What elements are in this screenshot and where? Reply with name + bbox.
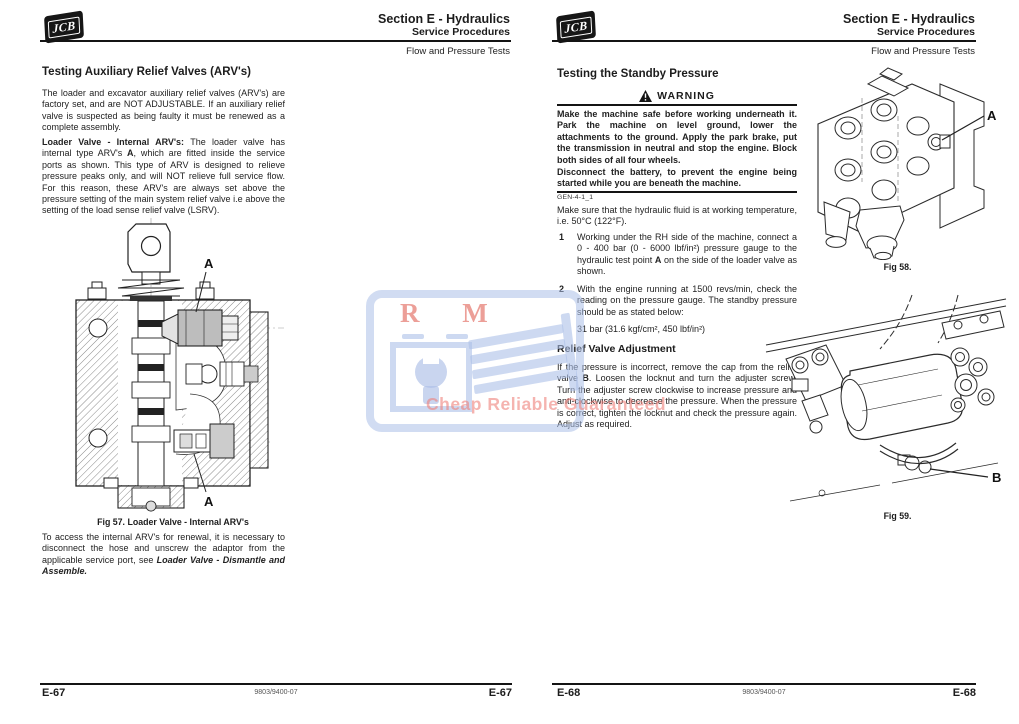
watermark-dash-left	[402, 334, 424, 339]
jcb-logo: JCB	[558, 12, 595, 42]
watermark: R M Cheap Reliable Guaranteed	[366, 290, 584, 432]
watermark-caption: Cheap Reliable Guaranteed	[426, 394, 666, 415]
fig57-caption: Fig 57. Loader Valve - Internal ARV's	[52, 517, 294, 527]
page-header: Section E - Hydraulics Service Procedure…	[715, 12, 975, 38]
valve-block-drawing: A	[790, 62, 1005, 260]
warning-code: GEN-4-1_1	[557, 194, 593, 201]
subsection-title: Service Procedures	[250, 26, 510, 38]
fig57-label-a-bottom: A	[204, 494, 214, 509]
page-title: Testing Auxiliary Relief Valves (ARV's)	[42, 66, 342, 78]
footer-rule	[552, 683, 976, 685]
subsection-title: Service Procedures	[715, 26, 975, 38]
section-title: Section E - Hydraulics	[250, 12, 510, 26]
header-rule	[552, 40, 976, 42]
loader-valve-section-drawing: A A	[58, 216, 288, 514]
jcb-logo-text: JCB	[48, 16, 80, 38]
warning-heading: WARNING	[557, 90, 797, 102]
watermark-dash-right	[446, 334, 468, 339]
paragraph-intro: The loader and excavator auxiliary relie…	[42, 88, 285, 134]
topic-title: Flow and Pressure Tests	[715, 46, 975, 57]
watermark-letters: R M	[400, 298, 506, 329]
figure-57: A A	[58, 216, 288, 514]
fig59-caption: Fig 59.	[790, 511, 1005, 521]
step-1-number: 1	[559, 232, 564, 242]
paragraph-access-post: .	[85, 566, 88, 576]
fig59-label-b: B	[992, 470, 1001, 485]
jcb-logo-text: JCB	[560, 16, 592, 38]
jcb-logo: JCB	[46, 12, 83, 42]
manual-spread: JCB Section E - Hydraulics Service Proce…	[0, 0, 1019, 724]
paragraph-loader-valve: Loader Valve - Internal ARV's: The loade…	[42, 137, 285, 217]
paragraph-loader-post: , which are fitted inside the service po…	[42, 148, 285, 215]
fig57-label-a-top: A	[204, 256, 214, 271]
footer-rule	[40, 683, 512, 685]
page-number-right: E-68	[876, 687, 976, 699]
section-title: Section E - Hydraulics	[715, 12, 975, 26]
warning-paragraph-2: Disconnect the battery, to prevent the e…	[557, 167, 797, 190]
figure-58: A	[790, 62, 1005, 260]
warning-title-text: WARNING	[657, 90, 715, 102]
topic-title: Flow and Pressure Tests	[250, 46, 510, 57]
paragraph-loader-lead: Loader Valve - Internal ARV's:	[42, 137, 190, 147]
warning-paragraph-1: Make the machine safe before working und…	[557, 109, 797, 166]
warning-rule-top	[557, 104, 797, 106]
page-right: JCB Section E - Hydraulics Service Proce…	[515, 0, 1019, 724]
warning-rule-bottom	[557, 191, 797, 193]
fig58-caption: Fig 58.	[790, 262, 1005, 272]
page-header: Section E - Hydraulics Service Procedure…	[250, 12, 510, 38]
paragraph-temperature: Make sure that the hydraulic fluid is at…	[557, 205, 797, 228]
paragraph-access: To access the internal ARV's for renewal…	[42, 532, 285, 578]
pump-drawing: B	[762, 293, 1010, 508]
page-number-right: E-67	[412, 687, 512, 699]
figure-59: B	[762, 293, 1010, 508]
step-1-text: Working under the RH side of the machine…	[577, 232, 797, 278]
header-rule	[40, 40, 511, 42]
warning-triangle-icon	[639, 90, 652, 102]
fig58-label-a: A	[987, 108, 997, 123]
